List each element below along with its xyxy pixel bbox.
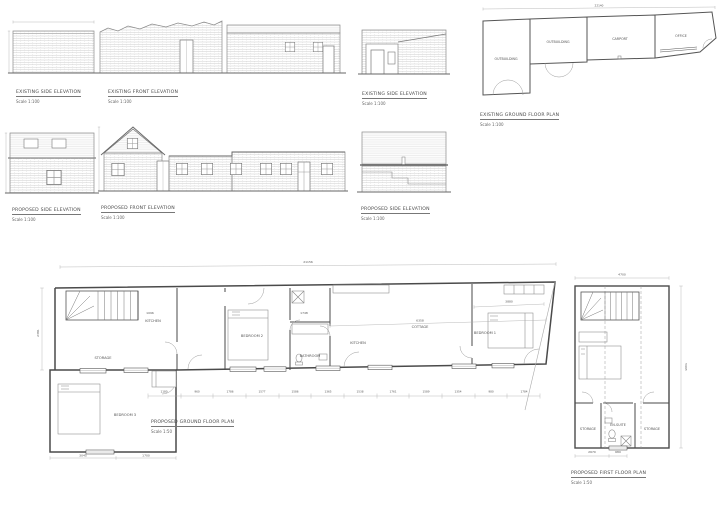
dim-overall: 22140 [595, 4, 604, 8]
drawing-sheet: 22140 OUTBUILDING OUTBUILDING CARPORT OF… [0, 0, 723, 520]
svg-text:1577: 1577 [258, 390, 265, 394]
fig-proposed-front-elevation [96, 120, 350, 196]
door [371, 50, 384, 74]
window [176, 163, 187, 174]
drawing-scale: Scale 1:100 [361, 216, 430, 221]
svg-text:1589: 1589 [422, 390, 429, 394]
staircase [66, 291, 138, 320]
fig-existing-ground-floor-plan: 22140 OUTBUILDING OUTBUILDING CARPORT OF… [475, 3, 723, 103]
fig-existing-side-elevation-2 [356, 22, 452, 84]
svg-text:1180: 1180 [160, 390, 167, 394]
dim-side: 2381 [36, 329, 40, 337]
svg-text:1761: 1761 [389, 390, 396, 394]
room-label-storage-left: STORAGE [580, 427, 596, 431]
svg-text:960: 960 [194, 390, 200, 394]
drawing-scale: Scale 1:100 [108, 99, 178, 104]
dim-shower: 1748 [300, 311, 308, 315]
caption-existing-ground-floor-plan: EXISTING GROUND FLOOR PLAN Scale 1:100 [480, 101, 559, 127]
drawing-scale: Scale 1:50 [151, 429, 234, 434]
dim-ff-overall: 4700 [618, 273, 626, 277]
gable-window [127, 138, 137, 148]
caption-proposed-side-elevation-1: PROPOSED SIDE ELEVATION Scale 1:100 [12, 196, 81, 222]
fig-proposed-first-floor-plan: 4700 5665 [565, 268, 723, 483]
room-label-kitchen-top: KITCHEN [145, 319, 161, 323]
dim-bed1: 3880 [505, 300, 513, 304]
drawing-title: PROPOSED FIRST FLOOR PLAN [571, 471, 646, 478]
fixtures [58, 285, 544, 434]
window [47, 170, 61, 184]
window [230, 163, 241, 174]
dim-overall: 21156 [303, 260, 313, 264]
room-label-ensuite: EN-SUITE [610, 423, 626, 427]
dim-ff-a: 2670 [588, 450, 596, 454]
window [285, 42, 295, 52]
room-label-outbuilding-1: OUTBUILDING [494, 57, 517, 61]
window [260, 163, 271, 174]
room-label-kitchen: KITCHEN [350, 341, 366, 345]
caption-proposed-front-elevation: PROPOSED FRONT ELEVATION Scale 1:100 [101, 194, 175, 220]
room-label-outbuilding-2: OUTBUILDING [546, 40, 569, 44]
room-label-cottage: COTTAGE [412, 325, 430, 329]
fig-existing-front-elevation [96, 12, 348, 80]
rooflight [24, 139, 38, 148]
room-label-bedroom2: BEDROOM 2 [241, 334, 263, 338]
window [201, 163, 212, 174]
ff-staircase [581, 292, 639, 320]
drawing-scale: Scale 1:100 [16, 99, 81, 104]
drawing-scale: Scale 1:100 [480, 122, 559, 127]
drawing-scale: Scale 1:100 [362, 101, 427, 106]
fig-existing-side-elevation-1 [6, 18, 100, 80]
drawing-title: PROPOSED SIDE ELEVATION [12, 208, 81, 215]
dim-ff-depth: 5665 [684, 363, 688, 371]
svg-text:1586: 1586 [291, 390, 298, 394]
caption-proposed-ground-floor-plan: PROPOSED GROUND FLOOR PLAN Scale 1:50 [151, 408, 234, 434]
internal-dims [40, 288, 546, 460]
drawing-title: EXISTING SIDE ELEVATION [362, 92, 427, 99]
room-label-storage: STORAGE [94, 356, 112, 360]
svg-text:1786: 1786 [226, 390, 233, 394]
door [323, 46, 334, 73]
drawing-scale: Scale 1:100 [101, 215, 175, 220]
rooflight [52, 139, 66, 148]
room-label-office: OFFICE [675, 34, 687, 38]
caption-proposed-first-floor-plan: PROPOSED FIRST FLOOR PLAN Scale 1:50 [571, 459, 646, 485]
caption-existing-side-elevation-1: EXISTING SIDE ELEVATION Scale 1:100 [16, 78, 81, 104]
room-label-bedroom1: BEDROOM 1 [474, 331, 496, 335]
dim-ff-b: 680 [615, 450, 621, 454]
window [112, 163, 124, 175]
room-label-storage-right: STORAGE [644, 427, 660, 431]
ff-room-labels: STORAGE EN-SUITE STORAGE [580, 423, 660, 431]
ff-door-swings [582, 392, 654, 412]
svg-text:1365: 1365 [324, 390, 331, 394]
window [388, 52, 395, 64]
drawing-title: EXISTING FRONT ELEVATION [108, 90, 178, 97]
dim-kitchen: 1096 [146, 311, 154, 315]
drawing-title: PROPOSED FRONT ELEVATION [101, 206, 175, 213]
svg-text:1538: 1538 [356, 390, 363, 394]
svg-text:1354: 1354 [454, 390, 461, 394]
dim-wing-b: 1700 [142, 454, 150, 458]
room-label-bedroom3: BEDROOM 3 [114, 413, 136, 417]
window [280, 163, 291, 174]
drawing-title: EXISTING SIDE ELEVATION [16, 90, 81, 97]
window [321, 163, 332, 174]
ff-furniture [579, 332, 621, 379]
drawing-title: EXISTING GROUND FLOOR PLAN [480, 113, 559, 120]
dim-chain: 1180 960 1786 1577 1586 1365 1538 1761 1… [160, 390, 527, 394]
dim-hall: 6358 [416, 319, 424, 323]
caption-existing-side-elevation-2: EXISTING SIDE ELEVATION Scale 1:100 [362, 80, 427, 106]
drawing-title: PROPOSED SIDE ELEVATION [361, 207, 430, 214]
fig-proposed-ground-floor-plan: 21156 [28, 258, 568, 470]
caption-existing-front-elevation: EXISTING FRONT ELEVATION Scale 1:100 [108, 78, 178, 104]
dim-wing-a: 3045 [79, 454, 87, 458]
svg-text:1784: 1784 [520, 390, 527, 394]
drawing-scale: Scale 1:100 [12, 217, 81, 222]
drawing-title: PROPOSED GROUND FLOOR PLAN [151, 420, 234, 427]
fig-proposed-side-elevation-2 [356, 124, 452, 202]
caption-proposed-side-elevation-2: PROPOSED SIDE ELEVATION Scale 1:100 [361, 195, 430, 221]
svg-text:980: 980 [488, 390, 494, 394]
room-label-carport: CARPORT [612, 37, 628, 41]
window-bays [80, 363, 514, 454]
room-label-bathroom: BATHROOM [300, 354, 321, 358]
drawing-scale: Scale 1:50 [571, 480, 646, 485]
window [313, 42, 323, 52]
fig-proposed-side-elevation-1 [4, 124, 100, 198]
